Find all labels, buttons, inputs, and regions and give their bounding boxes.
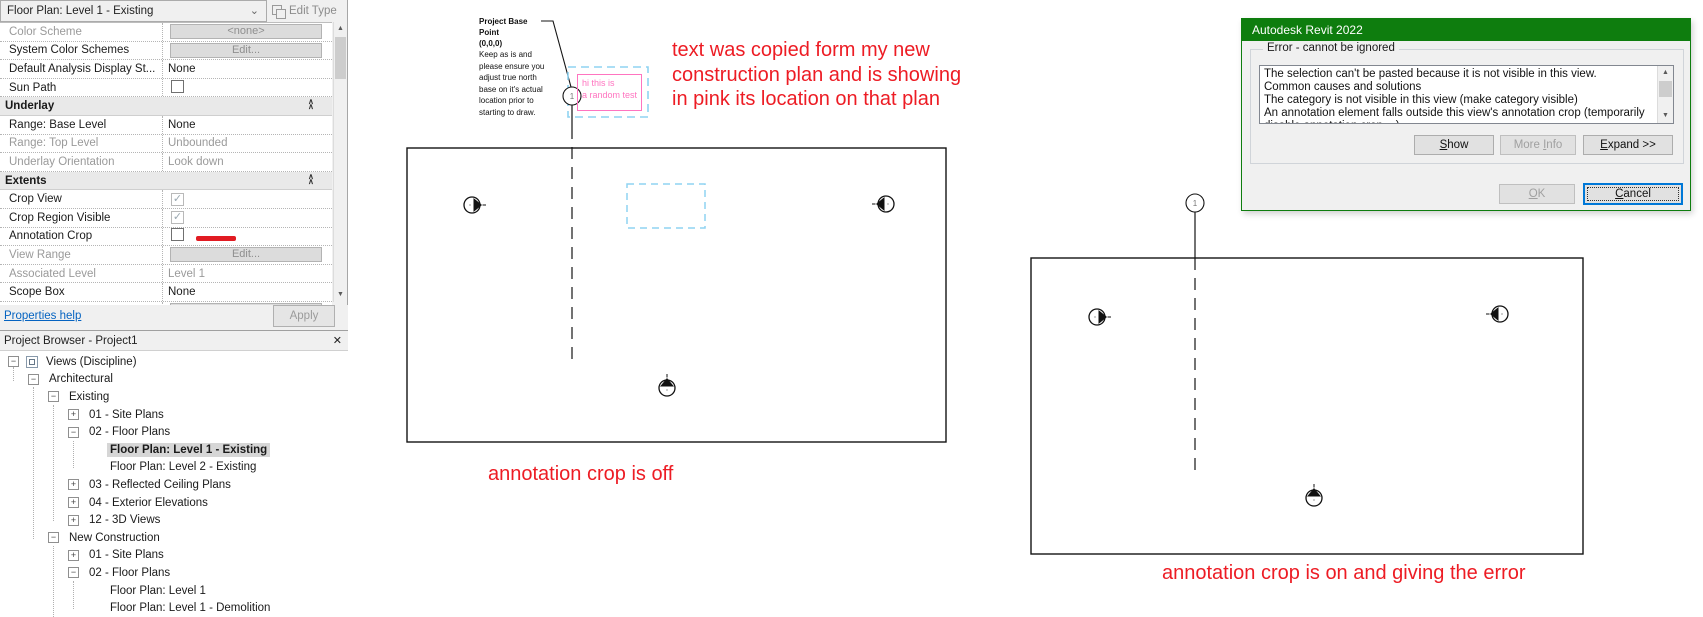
tree-item-label: 03 - Reflected Ceiling Plans xyxy=(86,478,234,492)
red-note-line: text was copied form my new xyxy=(672,38,961,63)
ok-button[interactable]: OK xyxy=(1499,184,1575,204)
elevation-marker xyxy=(464,197,486,213)
more-info-button[interactable]: More Info xyxy=(1500,135,1576,155)
svg-text:1: 1 xyxy=(570,92,575,101)
pbp-note-line: starting to draw. xyxy=(479,107,549,119)
project-base-point-note: Project Base Point (0,0,0) Keep as is an… xyxy=(479,16,549,118)
type-selector-value: Floor Plan: Level 1 - Existing xyxy=(7,5,153,17)
dialog-titlebar[interactable]: Autodesk Revit 2022 xyxy=(1242,19,1690,41)
close-icon[interactable]: ✕ xyxy=(333,331,342,351)
svg-text:1: 1 xyxy=(1193,199,1198,208)
scroll-up-icon[interactable]: ▲ xyxy=(334,22,347,36)
property-value: Level 1 xyxy=(163,268,332,280)
property-label: Associated Level xyxy=(0,265,163,283)
tree-item-floor-plan-level-1-demolition[interactable]: Floor Plan: Level 1 - Demolition xyxy=(0,599,332,617)
tree-guide xyxy=(73,441,74,468)
expand-button[interactable]: Expand >> xyxy=(1583,135,1673,155)
property-label: View Range xyxy=(0,246,163,264)
pbp-note-body: Keep as is andplease ensure youadjust tr… xyxy=(479,49,549,118)
scrollbar-thumb[interactable] xyxy=(335,37,346,79)
property-value: <none> xyxy=(163,24,332,39)
elevation-marker xyxy=(1306,484,1322,506)
crop-region-right-view xyxy=(1031,258,1583,554)
edit-type-button[interactable]: Edit Type xyxy=(271,1,347,21)
property-grid: Color Scheme<none>System Color SchemesEd… xyxy=(0,22,332,305)
property-label: Default Analysis Display St... xyxy=(0,60,163,78)
property-value: Edit... xyxy=(163,247,332,262)
tree-item-new-construction[interactable]: −New Construction xyxy=(0,529,332,547)
tree-expand-icon[interactable]: + xyxy=(68,515,79,526)
tree-item-04-exterior-elevations[interactable]: +04 - Exterior Elevations xyxy=(0,494,332,512)
checkbox-crop-region-visible: ✓ xyxy=(171,211,184,224)
pbp-note-line: base on it's actual xyxy=(479,84,549,96)
tree-item-label: 04 - Exterior Elevations xyxy=(86,496,211,510)
tree-item-02-floor-plans[interactable]: −02 - Floor Plans xyxy=(0,564,332,582)
property-value: Unbounded xyxy=(163,137,332,149)
tree-item-label: Views (Discipline) xyxy=(43,355,140,369)
pbp-note-line: location prior to xyxy=(479,95,549,107)
error-message-line: disable annotation crop ...) xyxy=(1264,120,1656,124)
red-marker-annotation xyxy=(196,236,236,241)
tree-expand-icon[interactable]: + xyxy=(68,550,79,561)
red-note-line: construction plan and is showing xyxy=(672,63,961,88)
tree-collapse-icon[interactable]: − xyxy=(48,391,59,402)
project-browser-title: Project Browser - Project1 xyxy=(4,335,138,347)
collapse-chevron-icon[interactable] xyxy=(308,175,318,187)
property-row-system-color-schemes: System Color SchemesEdit... xyxy=(0,42,332,61)
property-row-range-top-level: Range: Top LevelUnbounded xyxy=(0,135,332,154)
property-value: ✓ xyxy=(163,193,332,206)
property-button-color-scheme[interactable]: <none> xyxy=(170,24,322,39)
chevron-down-icon: ⌄ xyxy=(250,1,259,21)
property-value xyxy=(163,80,332,96)
tree-guide xyxy=(53,405,54,521)
tree-guide xyxy=(53,546,54,617)
error-message-line: The category is not visible in this view… xyxy=(1264,94,1656,107)
edit-type-icon xyxy=(271,4,285,18)
properties-footer: Properties help Apply xyxy=(0,305,348,330)
elevation-marker xyxy=(1089,309,1111,325)
property-label: Range: Base Level xyxy=(0,116,163,134)
collapse-chevron-icon[interactable] xyxy=(308,100,318,112)
tree-expand-icon[interactable]: + xyxy=(68,479,79,490)
error-message-list: The selection can't be pasted because it… xyxy=(1260,66,1656,124)
property-label: Underlay xyxy=(0,97,163,115)
property-label: Underlay Orientation xyxy=(0,153,163,171)
property-label: Color Scheme xyxy=(0,23,163,41)
property-label: Scope Box xyxy=(0,283,163,301)
red-note-line: in pink its location on that plan xyxy=(672,87,961,112)
red-annotation-paragraph: text was copied form my new construction… xyxy=(672,38,961,112)
tree-item-label: 12 - 3D Views xyxy=(86,513,163,527)
tree-item-floor-plan-level-2-existing[interactable]: Floor Plan: Level 2 - Existing xyxy=(0,459,332,477)
cancel-button[interactable]: Cancel xyxy=(1583,183,1683,205)
scroll-up-icon[interactable]: ▲ xyxy=(1658,66,1673,80)
pbp-note-line: adjust true north xyxy=(479,72,549,84)
pbp-note-line: please ensure you xyxy=(479,61,549,73)
project-browser-panel: Project Browser - Project1 ✕ −Views (Dis… xyxy=(0,330,348,616)
property-row-crop-view: Crop View✓ xyxy=(0,190,332,209)
tree-item-floor-plan-level-1-existing[interactable]: Floor Plan: Level 1 - Existing xyxy=(0,441,332,459)
tree-item-01-site-plans[interactable]: +01 - Site Plans xyxy=(0,547,332,565)
tree-item-label: Floor Plan: Level 1 - Existing xyxy=(107,443,270,457)
property-row-default-analysis-display-st: Default Analysis Display St...None xyxy=(0,60,332,79)
project-browser-titlebar: Project Browser - Project1 ✕ xyxy=(0,331,348,351)
dialog-scrollbar[interactable]: ▲ ▼ xyxy=(1657,66,1673,123)
browser-tree: −Views (Discipline)−Architectural−Existi… xyxy=(0,353,332,617)
pink-text-line: hi this is xyxy=(582,78,641,90)
scrollbar-thumb[interactable] xyxy=(1659,81,1672,97)
elevation-marker xyxy=(1486,306,1508,322)
tree-guide xyxy=(73,581,74,609)
properties-scrollbar[interactable]: ▲ ▼ xyxy=(333,22,347,302)
tree-item-label: Existing xyxy=(66,390,112,404)
tree-item-architectural[interactable]: −Architectural xyxy=(0,371,332,389)
property-value: None xyxy=(163,119,332,131)
tree-item-03-reflected-ceiling-plans[interactable]: +03 - Reflected Ceiling Plans xyxy=(0,476,332,494)
tree-guide xyxy=(13,367,14,381)
error-group-label: Error - cannot be ignored xyxy=(1263,42,1399,54)
tree-collapse-icon[interactable]: − xyxy=(68,567,79,578)
property-value: Look down xyxy=(163,156,332,168)
property-label: Crop Region Visible xyxy=(0,209,163,227)
pasted-pink-text[interactable]: hi this is a random test xyxy=(577,74,642,111)
tree-item-01-site-plans[interactable]: +01 - Site Plans xyxy=(0,406,332,424)
views-discipline-icon xyxy=(26,356,38,368)
elevation-marker xyxy=(872,196,894,212)
error-message-box: The selection can't be pasted because it… xyxy=(1259,65,1674,124)
caption-annotation-crop-off: annotation crop is off xyxy=(488,462,673,487)
property-row-sun-path: Sun Path xyxy=(0,79,332,98)
pink-text-line: a random test xyxy=(582,90,641,102)
tree-item-label: 02 - Floor Plans xyxy=(86,425,173,439)
pasted-location-ghost-box xyxy=(627,184,705,228)
property-row-view-range: View RangeEdit... xyxy=(0,246,332,265)
tree-item-label: New Construction xyxy=(66,531,163,545)
tree-collapse-icon[interactable]: − xyxy=(28,374,39,385)
property-row-extents: Extents xyxy=(0,172,332,191)
scroll-down-icon[interactable]: ▼ xyxy=(1658,109,1673,123)
revit-error-dialog: Autodesk Revit 2022 Error - cannot be ig… xyxy=(1241,18,1691,211)
pbp-note-coords: (0,0,0) xyxy=(479,38,549,49)
error-message-line: The selection can't be pasted because it… xyxy=(1264,68,1656,81)
tree-collapse-icon[interactable]: − xyxy=(8,356,19,367)
property-row-color-scheme: Color Scheme<none> xyxy=(0,23,332,42)
type-selector-dropdown[interactable]: Floor Plan: Level 1 - Existing ⌄ xyxy=(0,0,267,22)
edit-type-label: Edit Type xyxy=(289,5,337,17)
error-message-line: Common causes and solutions xyxy=(1264,81,1656,94)
property-row-underlay-orientation: Underlay OrientationLook down xyxy=(0,153,332,172)
tree-guide xyxy=(33,387,34,539)
property-row-annotation-crop: Annotation Crop xyxy=(0,228,332,247)
tree-item-views-discipline[interactable]: −Views (Discipline) xyxy=(0,353,332,371)
property-value: ✓ xyxy=(163,211,332,224)
checkbox-sun-path[interactable] xyxy=(171,80,184,93)
property-label: Sun Path xyxy=(0,79,163,97)
tree-item-label: Floor Plan: Level 1 xyxy=(107,584,209,598)
scroll-down-icon[interactable]: ▼ xyxy=(334,288,347,302)
tree-item-label: Architectural xyxy=(46,372,116,386)
property-label: Annotation Crop xyxy=(0,228,163,246)
tree-item-label: Floor Plan: Level 1 - Demolition xyxy=(107,601,273,615)
tree-expand-icon[interactable]: + xyxy=(68,497,79,508)
property-label: Crop View xyxy=(0,190,163,208)
tree-item-label: 02 - Floor Plans xyxy=(86,566,173,580)
property-label: System Color Schemes xyxy=(0,42,163,60)
tree-item-label: 01 - Site Plans xyxy=(86,548,167,562)
show-button[interactable]: Show xyxy=(1414,135,1494,155)
dialog-title: Autodesk Revit 2022 xyxy=(1252,23,1363,37)
property-row-range-base-level: Range: Base LevelNone xyxy=(0,116,332,135)
tree-collapse-icon[interactable]: − xyxy=(48,532,59,543)
property-button-system-color-schemes[interactable]: Edit... xyxy=(170,43,322,58)
property-row-scope-box: Scope BoxNone xyxy=(0,283,332,302)
crop-region-left-view xyxy=(407,148,946,442)
property-value xyxy=(163,228,332,244)
tree-item-12-3d-views[interactable]: +12 - 3D Views xyxy=(0,511,332,529)
error-groupbox: Error - cannot be ignored The selection … xyxy=(1250,49,1684,164)
property-row-associated-level: Associated LevelLevel 1 xyxy=(0,265,332,284)
property-button-view-range[interactable]: Edit... xyxy=(170,247,322,262)
tree-collapse-icon[interactable]: − xyxy=(68,427,79,438)
property-value: Edit... xyxy=(163,43,332,58)
grid-bubble-right: 1 xyxy=(1186,194,1204,212)
property-label: Extents xyxy=(0,172,163,190)
property-label: Range: Top Level xyxy=(0,135,163,153)
elevation-marker xyxy=(659,374,675,396)
tree-item-existing[interactable]: −Existing xyxy=(0,388,332,406)
property-row-underlay: Underlay xyxy=(0,97,332,116)
checkbox-crop-view: ✓ xyxy=(171,193,184,206)
left-panel-column: Floor Plan: Level 1 - Existing ⌄ Edit Ty… xyxy=(0,0,348,616)
apply-button[interactable]: Apply xyxy=(273,305,335,327)
pbp-note-line: Keep as is and xyxy=(479,49,549,61)
property-value: None xyxy=(163,286,332,298)
tree-item-02-floor-plans[interactable]: −02 - Floor Plans xyxy=(0,423,332,441)
tree-item-label: 01 - Site Plans xyxy=(86,408,167,422)
error-message-line: An annotation element falls outside this… xyxy=(1264,107,1656,120)
properties-help-link[interactable]: Properties help xyxy=(4,310,81,322)
property-row-crop-region-visible: Crop Region Visible✓ xyxy=(0,209,332,228)
checkbox-annotation-crop[interactable] xyxy=(171,228,184,241)
tree-item-floor-plan-level-1[interactable]: Floor Plan: Level 1 xyxy=(0,582,332,600)
tree-item-label: Floor Plan: Level 2 - Existing xyxy=(107,460,259,474)
tree-expand-icon[interactable]: + xyxy=(68,409,79,420)
property-value: None xyxy=(163,63,332,75)
pbp-note-title: Project Base Point xyxy=(479,16,549,38)
caption-annotation-crop-on: annotation crop is on and giving the err… xyxy=(1162,561,1526,586)
